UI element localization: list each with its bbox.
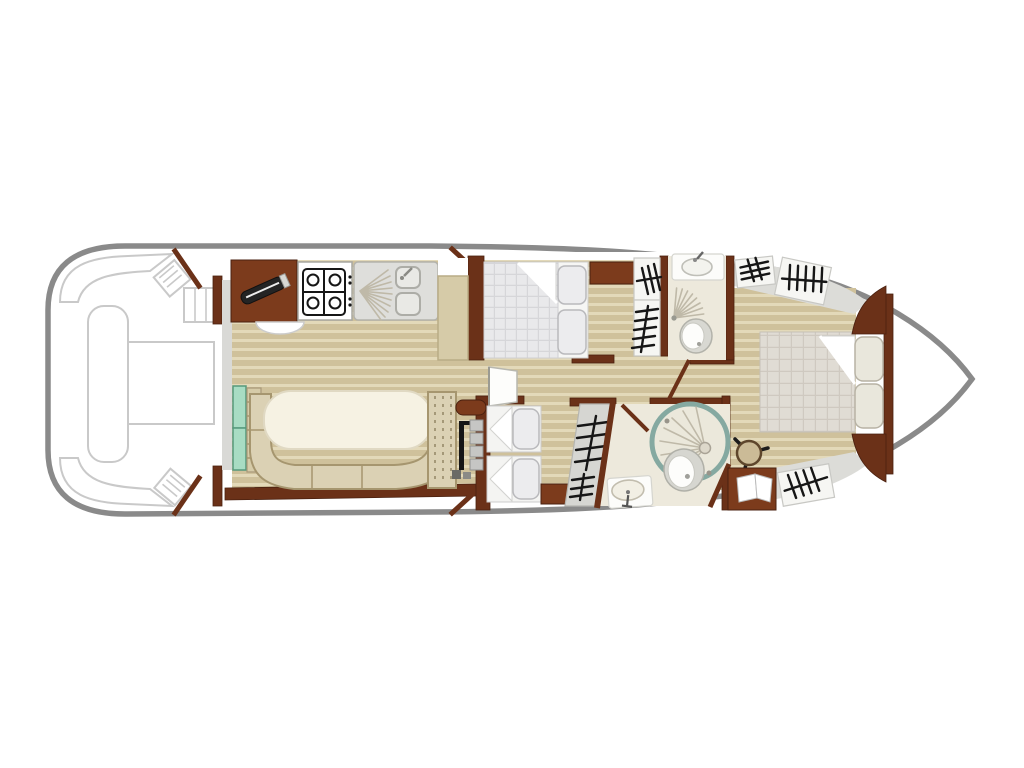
- companionway-bulkhead-top: [213, 276, 222, 324]
- boat-floor-plan: [0, 0, 1024, 768]
- mint-step-1: [233, 386, 246, 428]
- companionway-bulkhead-bottom: [213, 466, 222, 506]
- pillow-2: [558, 310, 586, 354]
- oval-table: [264, 391, 432, 449]
- pillow-1: [558, 266, 586, 304]
- plan-canvas: [0, 0, 1024, 768]
- stove-4-burner: [298, 262, 352, 320]
- mid-bath-left-wall: [660, 256, 668, 356]
- wardrobe-rack: [632, 300, 660, 356]
- steering-wheel-inside: [459, 422, 464, 470]
- single-bed-2: [487, 456, 541, 502]
- toilet: [680, 319, 712, 353]
- wardrobe-comb: [634, 258, 661, 300]
- mid-bathroom: [668, 252, 726, 360]
- pillow-1: [855, 337, 883, 381]
- chart-locker: [728, 468, 776, 510]
- lower-bathroom: [597, 402, 730, 508]
- nightstand: [590, 262, 634, 284]
- mid-bath-right-wall: [726, 256, 734, 360]
- open-door-leaf-white: [489, 367, 517, 406]
- double-sink: [354, 262, 438, 320]
- end-counter: [438, 276, 468, 360]
- deck-table: [128, 342, 214, 424]
- open-book-icon: [737, 474, 772, 502]
- washbasin: [607, 476, 653, 509]
- mid-cabin: [484, 258, 661, 358]
- washbasin: [672, 252, 724, 280]
- single-bed-1: [487, 406, 541, 452]
- pillow-2: [855, 384, 883, 428]
- helm-bench: [428, 392, 456, 488]
- mid-cabin-left-wall: [468, 256, 484, 360]
- wardrobe-comb-top: [735, 256, 776, 288]
- mint-step-2: [233, 428, 246, 470]
- end-counter-top: [438, 258, 468, 276]
- side-bench: [88, 306, 128, 462]
